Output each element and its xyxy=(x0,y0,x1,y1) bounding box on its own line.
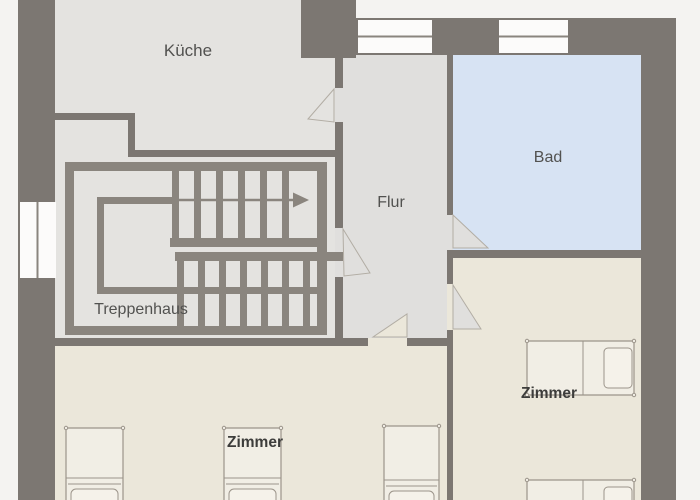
bed-corner xyxy=(279,426,282,429)
bed xyxy=(64,426,124,500)
window-top-1 xyxy=(358,20,432,53)
stair-rail-left xyxy=(97,197,104,294)
room-label-bad: Bad xyxy=(534,149,562,166)
stair-enclosure-top xyxy=(65,162,327,171)
bed-corner xyxy=(525,478,528,481)
stair-riser xyxy=(303,261,310,326)
bed-pillow xyxy=(71,489,118,500)
wall-flur-left-2 xyxy=(335,122,343,228)
stair-riser xyxy=(238,171,245,238)
wall-flur-left-3 xyxy=(335,277,343,346)
bed-corner xyxy=(64,426,67,429)
wall-bad-left xyxy=(447,55,453,215)
wall-zimmer-divider xyxy=(447,330,453,500)
bed xyxy=(525,478,635,500)
stair-riser xyxy=(219,261,226,326)
wall-flur-left-1 xyxy=(335,55,343,88)
wall-exterior-top xyxy=(301,18,676,55)
wall-exterior-right xyxy=(641,18,676,500)
stair-enclosure-right xyxy=(317,162,327,335)
wall-kueche-low-left xyxy=(55,113,135,120)
stair-riser xyxy=(260,171,267,238)
stair-riser xyxy=(216,171,223,238)
room-label-treppenhaus: Treppenhaus xyxy=(94,301,188,318)
room-label-kueche: Küche xyxy=(164,41,212,60)
stair-riser xyxy=(261,261,268,326)
bed-corner xyxy=(632,339,635,342)
stair-enclosure-left xyxy=(65,162,74,335)
room-label-zimmer-bottom: Zimmer xyxy=(227,434,283,451)
room-label-flur: Flur xyxy=(377,194,405,211)
stair-riser xyxy=(282,261,289,326)
bed-pillow xyxy=(229,489,276,500)
window-top-2 xyxy=(499,20,568,53)
wall-kueche-bottom xyxy=(128,150,343,157)
bed-corner xyxy=(382,424,385,427)
bed-frame xyxy=(384,426,439,500)
bed-corner xyxy=(222,426,225,429)
bed-corner xyxy=(437,424,440,427)
wall-bad-bottom xyxy=(453,250,641,258)
wall-bottom-left xyxy=(18,338,368,346)
bed xyxy=(382,424,440,500)
bed-corner xyxy=(121,426,124,429)
bed-corner xyxy=(525,339,528,342)
stair-riser xyxy=(240,261,247,326)
stair-riser xyxy=(194,171,201,238)
window-left xyxy=(20,202,56,278)
bed-corner xyxy=(632,393,635,396)
wall-bottom-right xyxy=(407,338,447,346)
stair-enclosure-bottom xyxy=(65,326,327,335)
wall-bad-left-lower xyxy=(447,250,453,284)
bed-pillow xyxy=(604,348,632,388)
bed-pillow xyxy=(604,487,632,500)
room-label-zimmer-right: Zimmer xyxy=(521,385,577,402)
bed-corner xyxy=(632,478,635,481)
stair-mid-wall-lower xyxy=(175,252,343,261)
stair-riser xyxy=(198,261,205,326)
stair-rail-bottom xyxy=(97,287,327,294)
stair-riser xyxy=(282,171,289,238)
bed-pillow xyxy=(389,491,434,500)
floor-plan: Küche Bad Flur Treppenhaus Zimmer Zimmer xyxy=(0,0,700,500)
stair-rail-top xyxy=(97,197,173,204)
stair-mid-wall-upper xyxy=(170,238,327,247)
stair-riser xyxy=(172,171,179,238)
